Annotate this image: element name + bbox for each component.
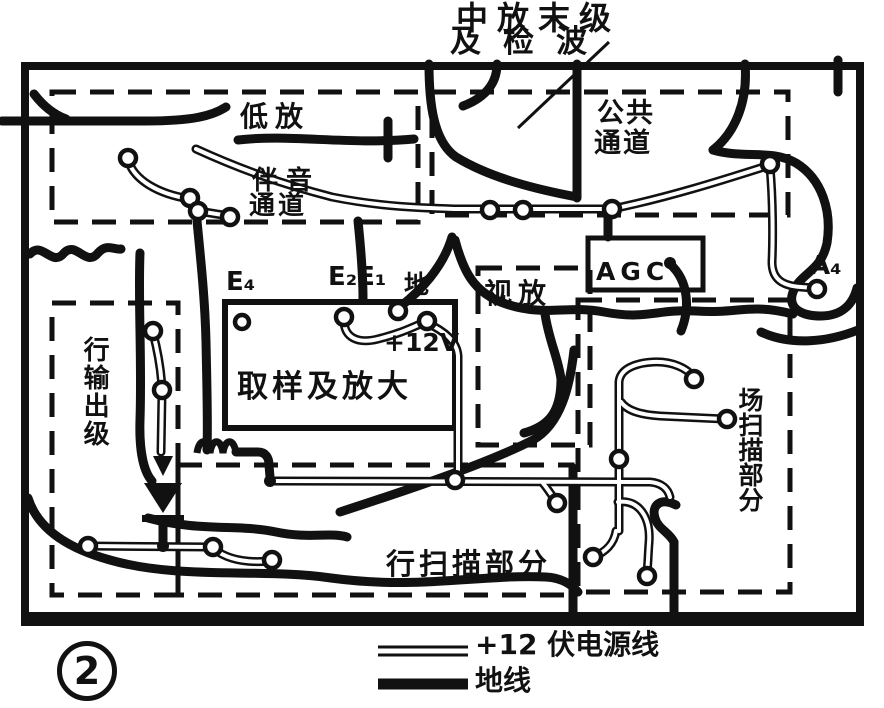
figure-number: 2 bbox=[74, 649, 100, 693]
legend-samples bbox=[378, 651, 468, 684]
label-common-channel-line1: 公共 bbox=[597, 99, 655, 128]
label-sample-amp: 取样及放大 bbox=[237, 371, 412, 404]
label-agc: AGC bbox=[596, 258, 669, 285]
label-pad-plus12v: +12V bbox=[384, 329, 459, 356]
label-field-scan: 场扫描部分 bbox=[736, 387, 763, 512]
label-common-channel-line2: 通道 bbox=[594, 129, 652, 158]
legend-ground-label: 地线 bbox=[475, 666, 531, 696]
figure-number-badge: 2 bbox=[57, 641, 117, 701]
label-video-amp: 视放 bbox=[484, 279, 552, 309]
legend-power-label: +12 伏电源线 bbox=[475, 630, 659, 660]
label-sound-channel-line2: 通道 bbox=[249, 192, 307, 220]
label-pad-e2e1: E₂E₁ bbox=[328, 263, 386, 291]
top-annotation-line2: 及检波 bbox=[450, 26, 609, 59]
label-horiz-output: 行输出级 bbox=[80, 336, 108, 448]
label-pad-ground: 地 bbox=[404, 271, 429, 298]
pcb-layout-diagram: 中放末级 及检波 低放 伴音 通道 公共 通道 E₄ E₂E₁ 地 +12V A… bbox=[0, 0, 884, 708]
label-pad-a4: A₄ bbox=[810, 252, 842, 280]
label-low-amp: 低放 bbox=[240, 102, 310, 132]
label-pad-e4: E₄ bbox=[226, 268, 255, 296]
label-horiz-scan: 行扫描部分 bbox=[386, 549, 551, 580]
